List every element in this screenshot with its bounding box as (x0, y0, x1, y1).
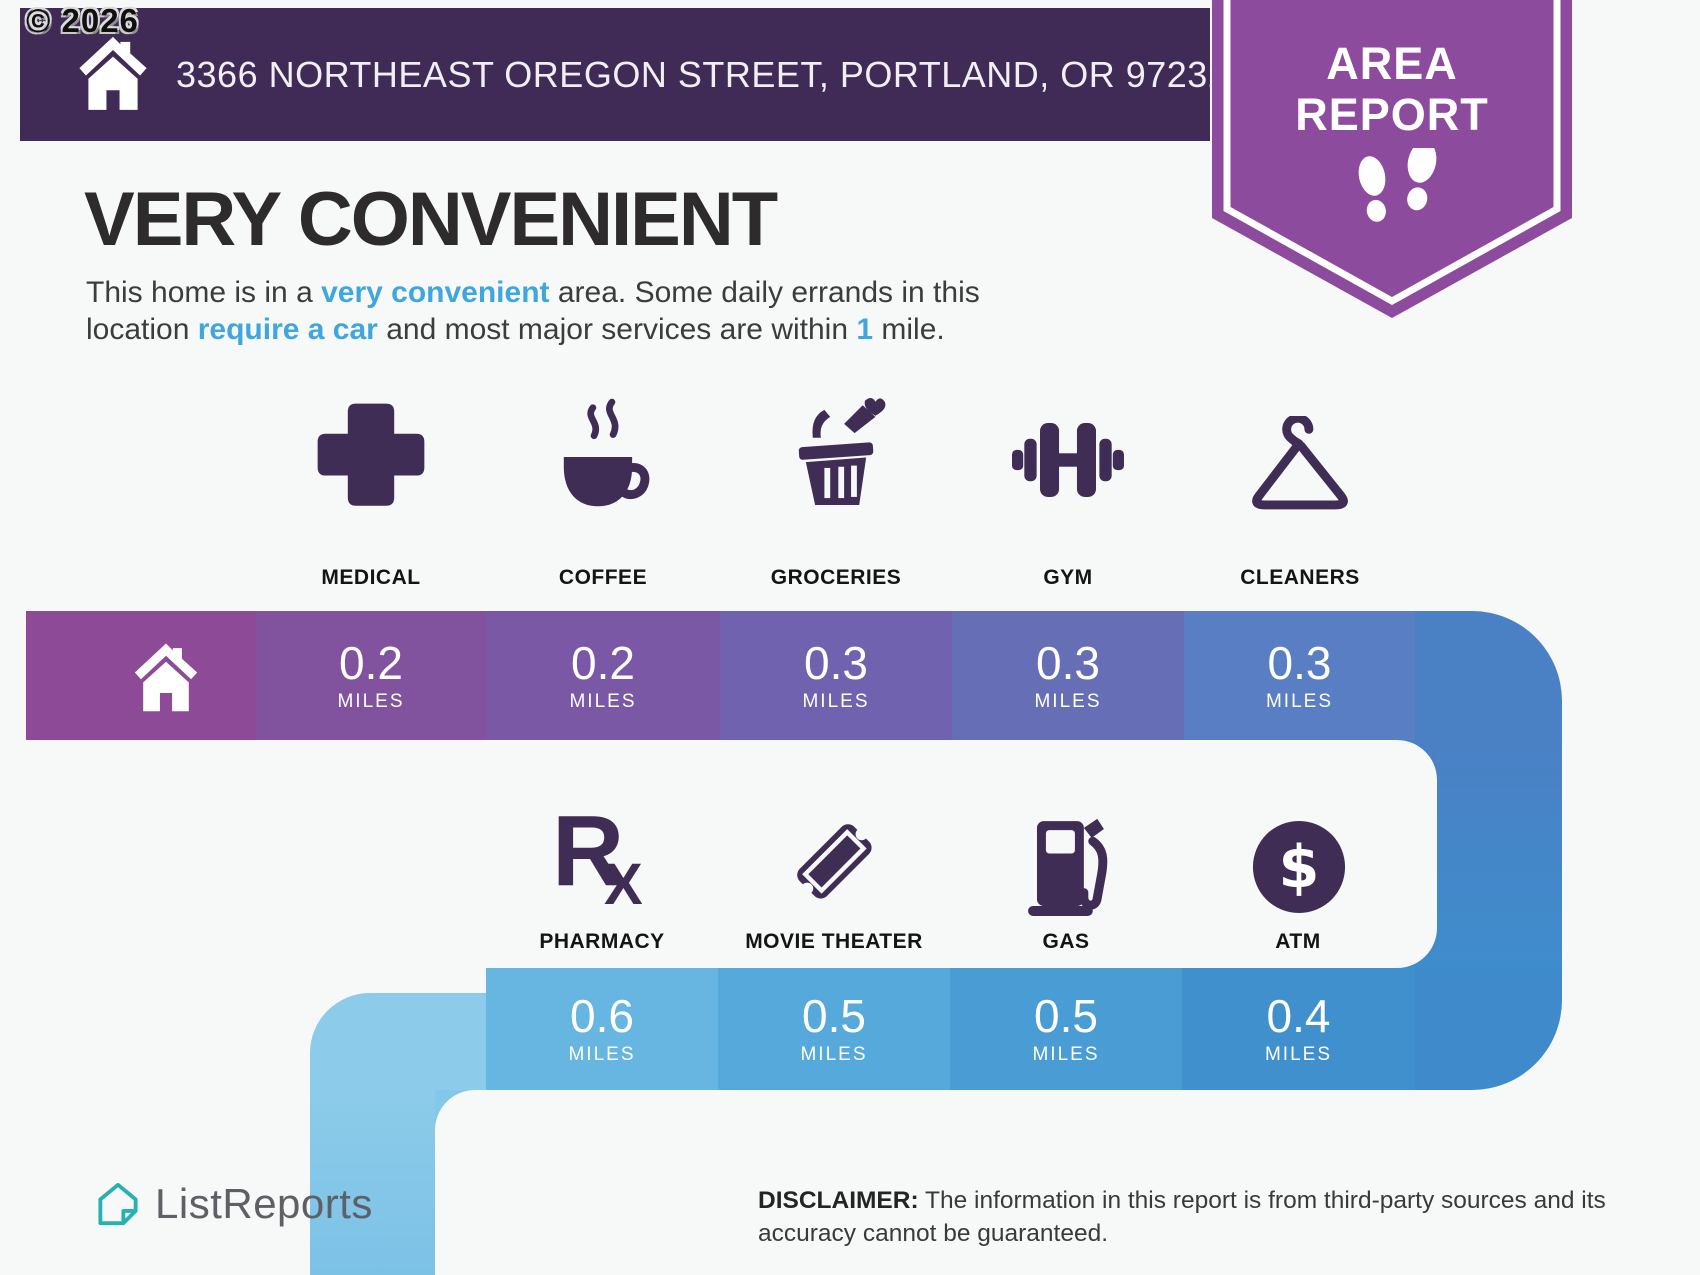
distance-cleaners: 0.3 MILES (1184, 611, 1415, 740)
highlight-require-a-car: require a car (198, 313, 378, 346)
distance-groceries: 0.3 MILES (720, 611, 952, 740)
poi-label-gas: GAS (946, 930, 1186, 954)
area-report-page: 3366 NORTHEAST OREGON STREET, PORTLAND, … (0, 0, 1700, 1275)
band-turn-top-left (310, 993, 486, 1090)
grocery-basket-icon (778, 392, 894, 516)
distance-pharmacy: 0.6 MILES (486, 968, 718, 1090)
distance-medical: 0.2 MILES (256, 611, 486, 740)
dollar-circle-icon: $ (1250, 818, 1348, 916)
distance-movie-theater: 0.5 MILES (718, 968, 950, 1090)
distance-band-2: 0.6 MILES 0.5 MILES 0.5 MILES 0.4 MILES (310, 968, 1562, 1090)
listreports-wordmark: ListReports (155, 1180, 373, 1228)
listreports-house-icon (95, 1181, 141, 1227)
rx-icon: R X (552, 806, 624, 896)
badge-title: AREA REPORT (1212, 38, 1572, 140)
poi-label-cleaners: CLEANERS (1180, 566, 1420, 590)
description-text: This home is in a very convenient area. … (86, 274, 980, 348)
poi-label-groceries: GROCERIES (716, 566, 956, 590)
poi-label-movie-theater: MOVIE THEATER (714, 930, 954, 954)
poi-label-pharmacy: PHARMACY (482, 930, 722, 954)
band-vertical-right (1437, 740, 1562, 968)
gas-pump-icon (1010, 810, 1122, 916)
distance-gym: 0.3 MILES (952, 611, 1184, 740)
coffee-cup-icon (547, 398, 659, 516)
home-icon (72, 32, 154, 114)
highlight-one-mile: 1 (856, 313, 873, 346)
poi-label-coffee: COFFEE (483, 566, 723, 590)
home-cell (26, 611, 256, 740)
dumbbell-icon (1012, 414, 1124, 506)
distance-atm: 0.4 MILES (1182, 968, 1415, 1090)
listreports-logo: ListReports (95, 1180, 373, 1228)
highlight-very-convenient: very convenient (321, 276, 549, 309)
distance-band-1: 0.2 MILES 0.2 MILES 0.3 MILES 0.3 MILES … (26, 611, 1562, 740)
band-turn-bottom-right (1415, 968, 1562, 1090)
header-bar: 3366 NORTHEAST OREGON STREET, PORTLAND, … (20, 8, 1210, 141)
page-title: VERY CONVENIENT (84, 176, 776, 263)
poi-label-gym: GYM (948, 566, 1188, 590)
footprints-icon (1340, 148, 1455, 253)
distance-coffee: 0.2 MILES (486, 611, 720, 740)
poi-label-medical: MEDICAL (251, 566, 491, 590)
ticket-icon (776, 806, 892, 916)
hanger-icon (1244, 416, 1356, 516)
area-report-badge: AREA REPORT (1212, 0, 1572, 325)
home-icon (128, 639, 204, 715)
svg-text:$: $ (1279, 833, 1320, 902)
distance-gas: 0.5 MILES (950, 968, 1182, 1090)
poi-label-atm: ATM (1178, 930, 1418, 954)
medical-cross-icon (313, 398, 429, 516)
copyright-text: © 2026 (26, 2, 139, 40)
disclaimer-text: DISCLAIMER: The information in this repo… (758, 1184, 1638, 1250)
property-address: 3366 NORTHEAST OREGON STREET, PORTLAND, … (176, 8, 1228, 141)
band-turn-top-right (1415, 611, 1562, 740)
